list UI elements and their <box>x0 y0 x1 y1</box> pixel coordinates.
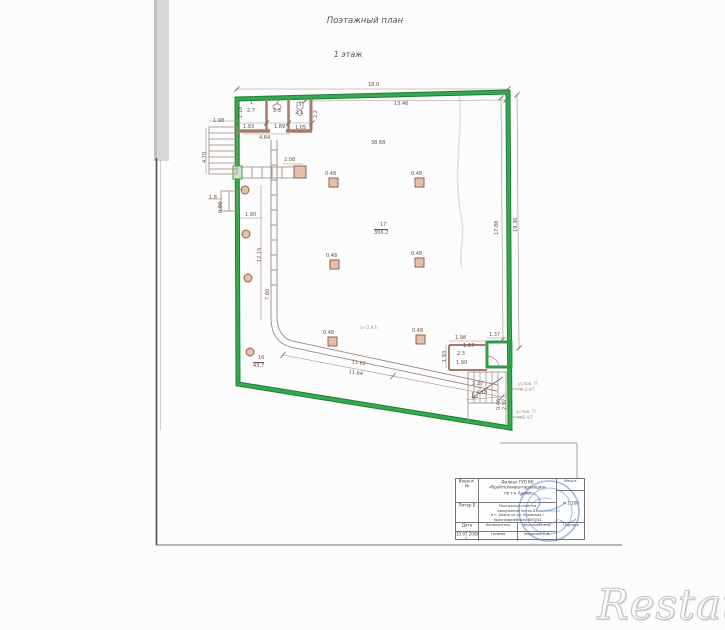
tb-date-label-cell: Дата <box>456 523 479 532</box>
dim-label: 4.70 <box>203 152 208 163</box>
tb-role1-cell: Исполнитель <box>479 523 518 532</box>
dim-label: 17 <box>380 223 386 228</box>
dim-label: 2.7 <box>247 109 255 114</box>
dim-label: 0.48 <box>412 329 423 334</box>
dim-label: 1.93 <box>243 125 254 130</box>
tb-organization-cell: Филиал ГУП КК «Крайтехинвентаризация» по… <box>479 479 557 503</box>
dim-label: 2 <box>276 101 279 106</box>
dim-label: 2.3 <box>273 109 281 114</box>
dim-label: услов. П <box>518 383 538 388</box>
dim-label: 17.88 <box>495 221 500 235</box>
dim-label: 4.64 <box>259 136 270 141</box>
dim-label: 13.46 <box>394 102 408 107</box>
dim-label: 11.62 <box>351 360 366 367</box>
tb-name2-cell: Зырянова О.В. <box>518 532 557 541</box>
dim-label: н-2.97 <box>518 417 533 422</box>
title-block: Инвент. № Литер Б Дата 15.07.2008 г. Фил… <box>455 478 585 540</box>
dim-label: 4.18 <box>476 391 487 396</box>
dim-label: 1.98 <box>213 119 224 124</box>
dim-label: 1 <box>250 101 253 106</box>
tb-date-value-cell: 15.07.2008 г. <box>456 532 479 541</box>
dim-label: 16 <box>258 356 264 361</box>
dim-label: 1.05 <box>295 126 306 131</box>
dim-label: 1.90 <box>456 361 467 366</box>
dim-label: 1.8 <box>209 196 217 201</box>
dim-label: 2.3 <box>457 352 465 357</box>
tb-scale-value-cell: м 1:100 <box>557 491 585 523</box>
dim-label: 1.93 <box>443 351 448 362</box>
scanned-floorplan-page: Поэтажный план 1 этаж 18.013.4638.680.48… <box>0 0 725 630</box>
dim-label: 19.36 <box>514 218 519 232</box>
dim-label: 1.98 <box>455 336 466 341</box>
tb-role2-cell: Начальник отд. <box>518 523 557 532</box>
dim-label: 1.97 <box>463 344 474 349</box>
dim-label: 0.90 <box>219 202 224 213</box>
tb-signature-cell: Подпись <box>557 523 585 541</box>
dim-label: 38.68 <box>371 141 385 146</box>
tb-name1-cell: Гасиева <box>479 532 518 541</box>
dim-label: 3 <box>298 103 301 108</box>
dim-label: 2.27 <box>472 382 483 387</box>
tb-document-title-cell: Поэтажный план на сооружение литер Б1 в … <box>479 503 557 523</box>
dim-label: 12.15 <box>258 248 263 262</box>
dim-label: 0.48 <box>411 252 422 257</box>
restate-watermark: Restate <box>597 580 725 629</box>
dim-label: 11.64 <box>348 370 363 377</box>
dim-label: 18.0 <box>368 83 379 88</box>
dim-label: 2.1 <box>295 111 303 116</box>
dim-label: 2.2 <box>314 110 319 118</box>
dim-label: 0.48 <box>326 254 337 259</box>
dim-label: н-2.97 <box>520 389 535 394</box>
dim-label: 306.2 <box>374 229 388 236</box>
dim-label: 43.7 <box>253 362 264 369</box>
dim-label: 7.80 <box>266 289 271 300</box>
dim-label: 0.48 <box>323 331 334 336</box>
dimension-labels-layer: 18.013.4638.680.480.480.480.480.480.4817… <box>0 0 725 630</box>
tb-scale-label-cell: Масшт. <box>557 479 585 491</box>
dim-label: 2.18 <box>239 107 244 118</box>
dim-label: услов. П <box>516 411 536 416</box>
dim-label: 0.48 <box>411 172 422 177</box>
dim-label: 1.37 <box>489 333 500 338</box>
dim-label: 1.90 <box>245 213 256 218</box>
dim-label: (н-2.97) <box>360 327 378 332</box>
dim-label: 1.89 <box>274 125 285 130</box>
dim-label: 0.48 <box>325 172 336 177</box>
dim-label: 2.08 <box>284 158 295 163</box>
tb-inventory-cell: Инвент. № <box>456 479 479 503</box>
dim-label: 2.97 <box>503 399 508 410</box>
tb-liter-cell: Литер Б <box>456 503 479 523</box>
